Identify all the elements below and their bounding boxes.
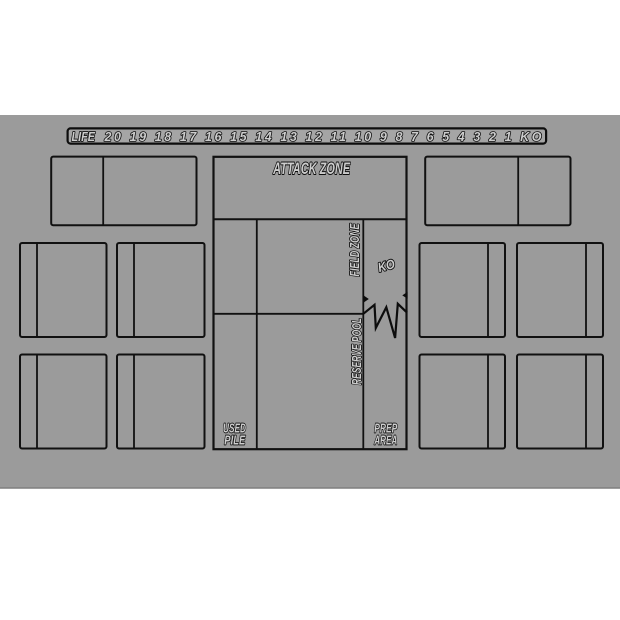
svg-text:RESERVE POOL: RESERVE POOL [350,318,364,385]
svg-text:FIELD ZONE: FIELD ZONE [348,223,362,276]
svg-text:PILE: PILE [224,432,245,447]
svg-text:ATTACK ZONE: ATTACK ZONE [272,160,350,178]
svg-text:AREA: AREA [374,432,398,447]
svg-text:LIFE: LIFE [72,129,96,144]
